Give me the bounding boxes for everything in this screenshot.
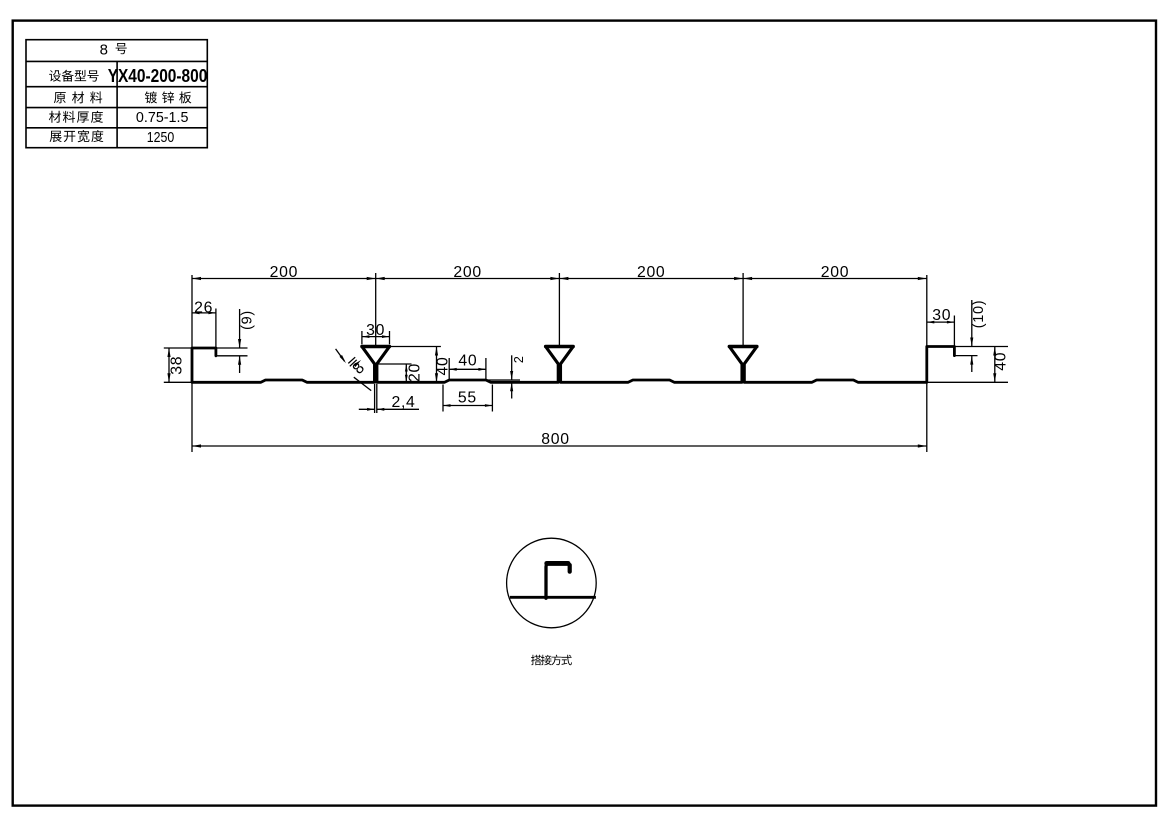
svg-text:40: 40 <box>458 353 477 370</box>
svg-text:26: 26 <box>194 299 213 316</box>
svg-text:55: 55 <box>458 390 477 407</box>
svg-text:(9): (9) <box>240 310 256 330</box>
svg-text:20: 20 <box>407 363 424 382</box>
svg-text:2: 2 <box>512 355 526 363</box>
svg-text:38: 38 <box>168 356 185 375</box>
svg-text:200: 200 <box>453 264 481 281</box>
svg-text:(10): (10) <box>971 300 987 329</box>
svg-text:0.75-1.5: 0.75-1.5 <box>136 110 189 126</box>
svg-text:200: 200 <box>270 264 298 281</box>
svg-text:800: 800 <box>541 431 569 448</box>
svg-text:200: 200 <box>637 264 665 281</box>
svg-text:200: 200 <box>821 264 849 281</box>
svg-text:8: 8 <box>100 42 108 59</box>
svg-text:30: 30 <box>366 322 385 339</box>
svg-text:YX40-200-800: YX40-200-800 <box>108 65 208 86</box>
svg-text:30: 30 <box>932 307 951 324</box>
svg-text:40: 40 <box>993 352 1010 371</box>
svg-text:1250: 1250 <box>147 129 175 146</box>
svg-text:2,4: 2,4 <box>391 394 415 411</box>
